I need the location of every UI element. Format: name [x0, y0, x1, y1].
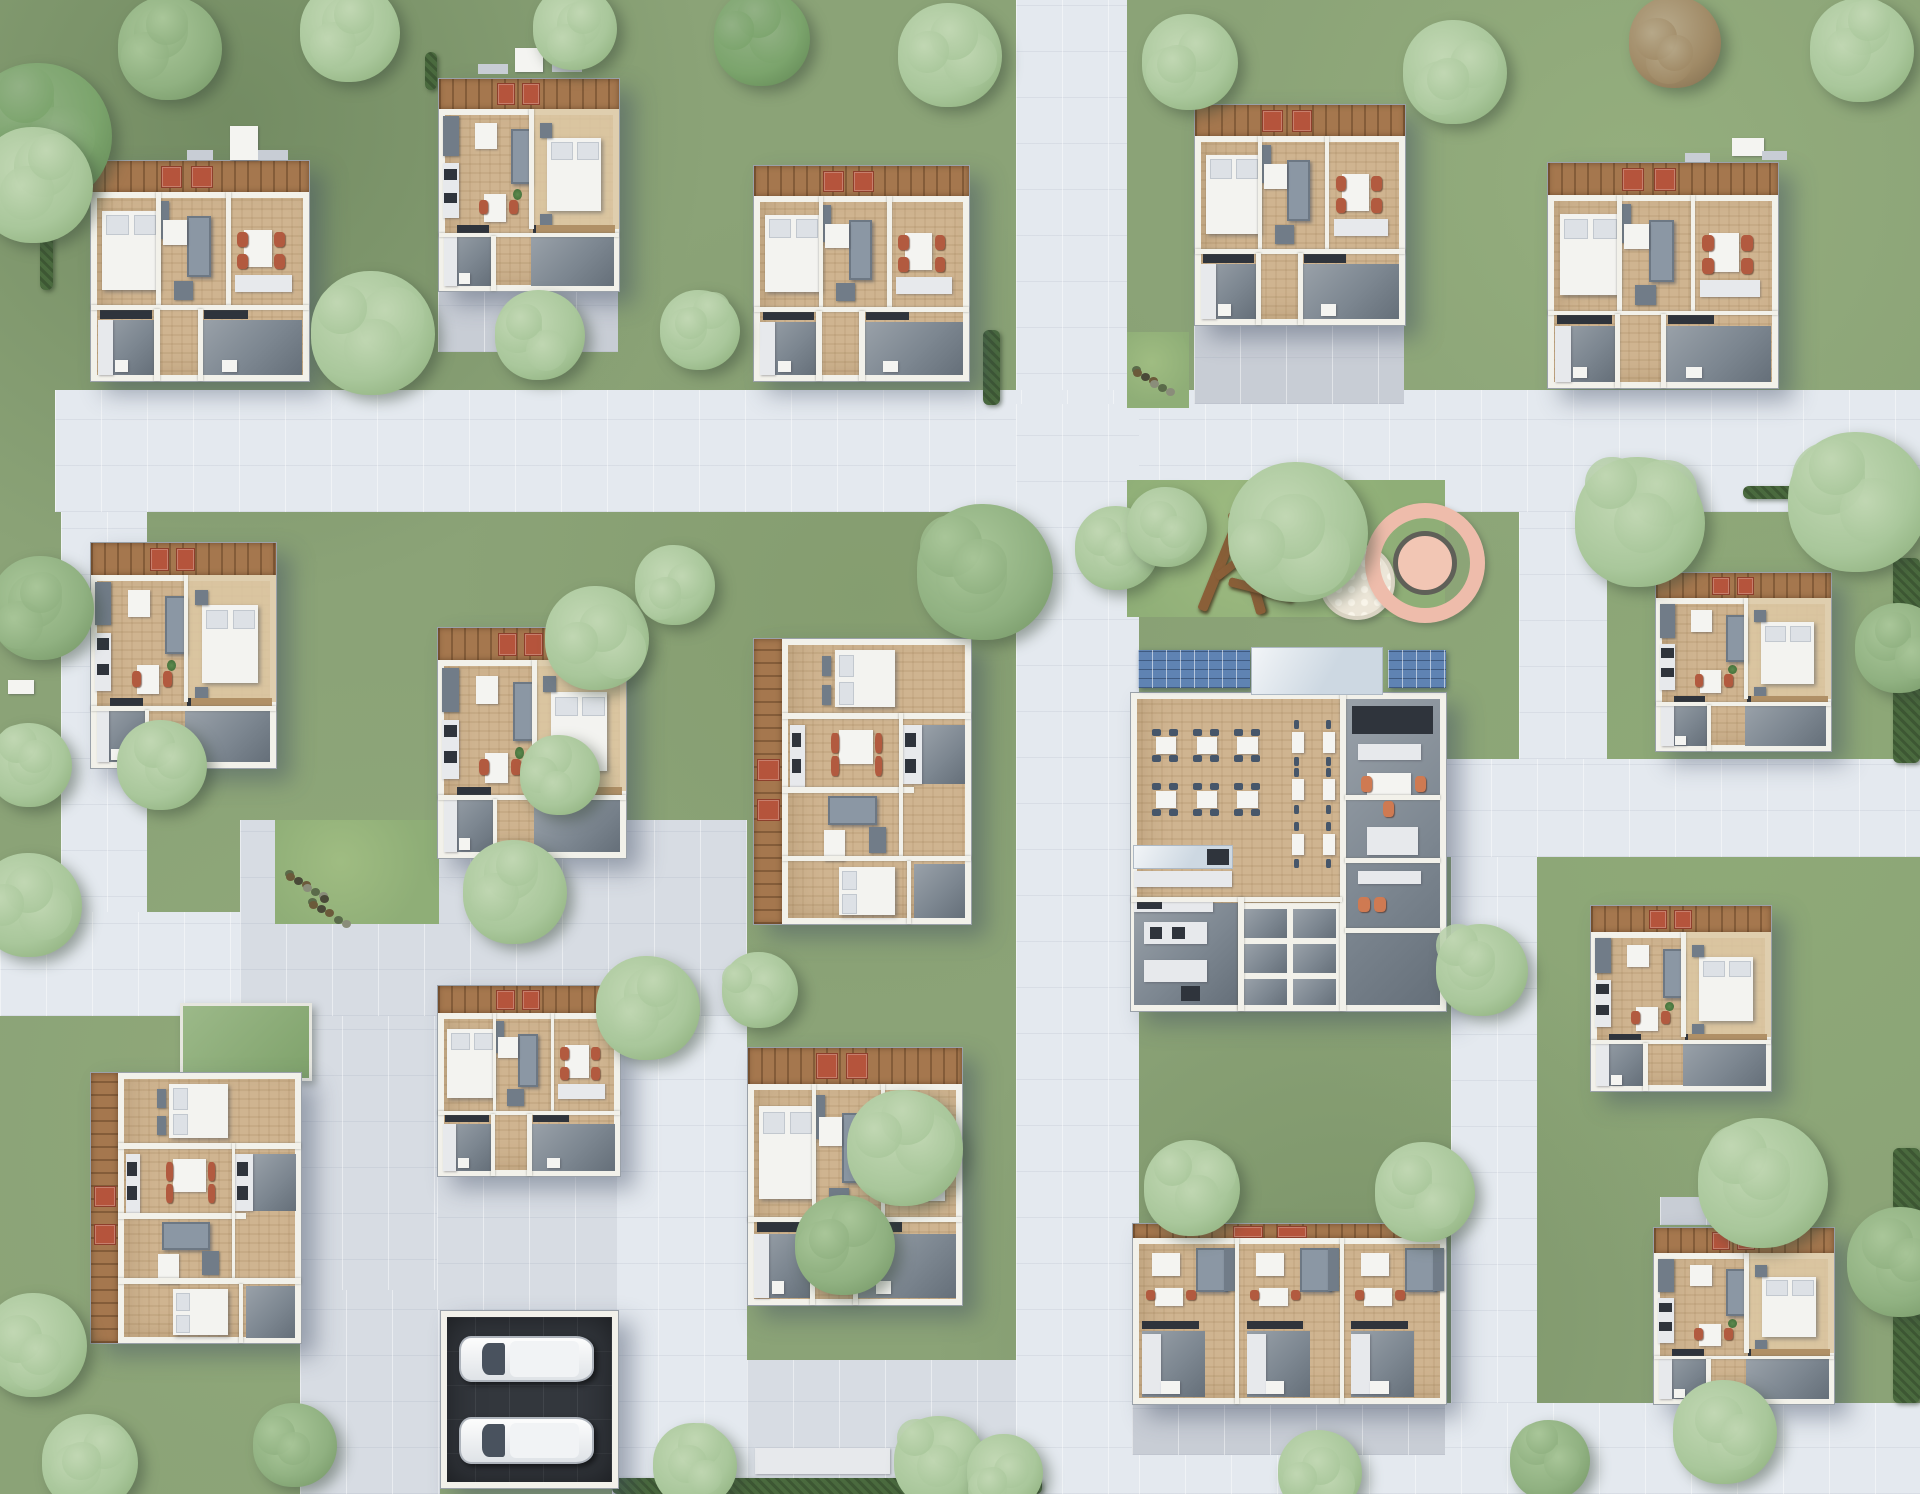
chair-red	[237, 232, 248, 247]
table-white	[1627, 945, 1649, 967]
house-14	[1653, 1227, 1835, 1405]
chair	[1193, 729, 1202, 736]
tree-foliage	[688, 1460, 722, 1494]
chair	[1294, 720, 1299, 729]
flower-patch	[1150, 380, 1159, 388]
dining-table	[1292, 834, 1304, 855]
bed-pillow	[1790, 626, 1811, 641]
counter	[98, 320, 113, 375]
car	[459, 1336, 594, 1382]
tree	[795, 1195, 895, 1295]
flower-patch	[342, 920, 351, 928]
dining-table-group	[1191, 785, 1223, 814]
chair	[1169, 755, 1178, 762]
interior-wall	[527, 1114, 532, 1176]
roof-deck	[91, 543, 276, 575]
room-gray	[914, 864, 965, 918]
interior-wall	[782, 787, 914, 793]
cabinet	[202, 1251, 218, 1275]
interior-wall	[493, 1013, 497, 1113]
interior-wall	[816, 311, 821, 381]
kitchen-counter-dark	[237, 1162, 248, 1176]
tree	[1629, 0, 1721, 88]
chair-red	[1371, 176, 1382, 191]
interior-wall	[1656, 702, 1831, 706]
bed-pillow	[842, 871, 856, 890]
interior-wall	[819, 196, 823, 309]
interior-wall	[551, 1013, 555, 1113]
tree-foliage	[952, 539, 1006, 593]
deck-lounger	[757, 759, 779, 781]
car-roof	[510, 1423, 578, 1459]
interior-wall	[1345, 928, 1440, 933]
cabinet	[1275, 225, 1294, 244]
interior-wall	[1617, 195, 1622, 313]
chair-red	[237, 254, 248, 269]
counter	[444, 799, 457, 852]
dining-table-group	[1150, 785, 1182, 814]
counter	[760, 322, 775, 376]
room-gray	[1244, 944, 1287, 973]
deck-lounger	[524, 633, 543, 656]
counter	[896, 277, 952, 294]
flower-patch	[1133, 369, 1142, 377]
car-windshield	[482, 1343, 506, 1375]
chair	[1169, 729, 1178, 736]
hedge	[425, 52, 437, 90]
chair	[1294, 805, 1299, 814]
table-white	[839, 730, 873, 764]
tree	[495, 290, 585, 380]
hedge	[983, 330, 1000, 405]
tree	[311, 271, 435, 395]
flower-patch	[311, 888, 320, 896]
chair	[1251, 755, 1260, 762]
interior-wall	[154, 309, 159, 381]
flower-patch	[286, 873, 295, 881]
deck-lounger	[94, 1186, 116, 1207]
tree-foliage	[1875, 612, 1911, 648]
interior-wall	[529, 109, 534, 229]
deck-lounger	[176, 548, 195, 571]
house-interior	[441, 1311, 618, 1488]
roof-deck	[1656, 573, 1831, 598]
garage	[440, 1310, 619, 1489]
dining-table-group	[1320, 773, 1339, 808]
tree	[0, 1293, 87, 1397]
tree-foliage	[897, 1419, 934, 1456]
bed-pillow	[1210, 159, 1232, 178]
cabinet	[1224, 1248, 1235, 1291]
table-white	[476, 676, 499, 704]
paving-slab	[258, 150, 288, 160]
cabinet	[1635, 285, 1656, 304]
tree	[1127, 487, 1207, 567]
bed-pillow	[1766, 1280, 1787, 1295]
room-gray	[531, 236, 614, 285]
counter	[444, 236, 457, 285]
chair-red	[1336, 176, 1347, 191]
cabinet	[195, 590, 208, 605]
kitchen-counter-dark	[1661, 648, 1673, 657]
interior-wall	[118, 1213, 246, 1218]
roof-deck	[1591, 906, 1771, 932]
footpath	[1194, 325, 1404, 404]
tree	[253, 1403, 337, 1487]
house-10	[1590, 905, 1772, 1092]
deck-lounger	[1277, 1226, 1307, 1237]
kitchen-counter-dark	[445, 1114, 489, 1122]
chair	[1152, 783, 1161, 790]
deck-lounger	[161, 166, 183, 188]
dining-table	[1197, 791, 1217, 808]
dining-table	[1237, 737, 1257, 754]
chair-red	[509, 200, 518, 215]
chair-red	[898, 257, 909, 272]
kitchen-counter-dark	[204, 309, 248, 318]
house-03	[753, 165, 970, 382]
table-white	[883, 361, 898, 372]
bed-pillow	[1703, 961, 1724, 977]
house-interior	[1591, 932, 1771, 1091]
flower-patch	[320, 895, 329, 903]
deck-lounger	[1737, 577, 1755, 595]
chair	[1326, 757, 1331, 766]
cabinet	[1660, 604, 1676, 638]
chair-red	[479, 200, 488, 215]
sofa	[1287, 160, 1310, 221]
dining-table	[1237, 791, 1257, 808]
chair-red	[166, 1162, 173, 1181]
table-white	[778, 361, 791, 372]
chair	[1210, 809, 1219, 816]
kitchen-counter-dark	[1659, 1322, 1672, 1331]
kitchen-counter-dark	[127, 1186, 136, 1200]
tree	[847, 1090, 963, 1206]
flower-patch	[1166, 388, 1175, 396]
flower-patch	[303, 884, 312, 892]
bed	[1560, 214, 1620, 295]
kitchen-counter-dark	[444, 751, 457, 763]
chair-red	[560, 1047, 569, 1060]
dining-table-group	[1320, 725, 1339, 760]
carousel-hub	[1393, 531, 1457, 595]
dining-table	[1197, 737, 1217, 754]
tree	[1847, 1207, 1920, 1317]
tree	[660, 290, 740, 370]
table-white	[498, 1037, 518, 1058]
community-house	[1130, 692, 1447, 1012]
dining-table	[1323, 834, 1335, 855]
chair-orange	[1415, 776, 1426, 792]
chair-orange	[1358, 897, 1371, 913]
deck-lounger	[1622, 168, 1645, 191]
kitchen-counter-dark	[1351, 1321, 1407, 1329]
counter	[1596, 1043, 1609, 1086]
interior-wall	[1325, 136, 1329, 251]
bed-pillow	[769, 219, 791, 238]
cabinet	[507, 1089, 523, 1105]
cabinet	[836, 283, 855, 301]
tree	[117, 720, 207, 810]
tree	[917, 504, 1053, 640]
chair-red	[1291, 1290, 1300, 1300]
cabinet	[1433, 1248, 1444, 1291]
kitchen-counter-dark	[237, 1186, 248, 1200]
table-white	[1674, 1389, 1685, 1398]
kitchen-counter-dark	[1659, 1303, 1672, 1312]
deck-lounger	[1292, 110, 1313, 132]
sofa	[513, 682, 534, 741]
chair-red	[1395, 1290, 1404, 1300]
interior-wall	[859, 311, 864, 381]
kitchen-counter-dark	[444, 193, 457, 204]
bed-pillow	[839, 655, 854, 678]
chair-red	[166, 1184, 173, 1203]
flower-patch	[317, 905, 326, 913]
deck-lounger	[1649, 910, 1667, 929]
counter	[558, 1084, 605, 1099]
chair-red	[560, 1067, 569, 1080]
interior-wall	[239, 1284, 243, 1343]
interior-wall	[1744, 1253, 1749, 1353]
bed-pillow	[763, 1112, 785, 1134]
kitchen-counter-dark	[1668, 314, 1714, 324]
room-gray	[1665, 326, 1771, 382]
interior-wall	[1691, 195, 1696, 313]
chair-red	[1694, 1328, 1703, 1340]
table-white	[1266, 1381, 1285, 1394]
counter	[1555, 326, 1571, 382]
deck-lounger	[1654, 168, 1677, 191]
counter	[1351, 1334, 1370, 1394]
shed-roof	[1732, 138, 1764, 156]
cabinet	[1755, 1265, 1768, 1277]
bed-pillow	[451, 1033, 470, 1050]
interior-wall	[91, 706, 276, 711]
potted-plant	[1728, 1319, 1737, 1328]
interior-wall	[1298, 253, 1303, 325]
tree	[898, 3, 1002, 107]
chair-red	[1741, 258, 1753, 273]
chair-red	[208, 1162, 215, 1181]
roof-deck	[754, 166, 969, 196]
potted-plant	[1665, 1002, 1674, 1012]
tree	[300, 0, 400, 82]
deck-lounger	[150, 548, 169, 571]
house-04	[1194, 104, 1406, 326]
counter	[1659, 1359, 1672, 1400]
interior-wall	[439, 233, 619, 238]
deck-lounger	[498, 633, 517, 656]
flower-patch	[1158, 384, 1167, 392]
counter	[1144, 960, 1207, 982]
paving-slab	[187, 150, 213, 160]
tree-foliage	[496, 844, 538, 886]
dining-table-group	[1232, 785, 1264, 814]
interior-wall	[782, 856, 971, 862]
chair-red	[1336, 198, 1347, 213]
deck-lounger	[522, 990, 540, 1010]
kitchen-counter-dark	[763, 311, 815, 320]
table-white	[876, 1281, 891, 1294]
cabinet	[1595, 938, 1611, 973]
roof-deck	[91, 161, 309, 192]
cabinet	[1692, 945, 1705, 958]
chair	[1193, 809, 1202, 816]
chair	[1251, 809, 1260, 816]
tree-foliage	[62, 1442, 100, 1480]
interior-wall	[1256, 253, 1261, 325]
bed-pillow	[134, 215, 156, 234]
bed-pillow	[582, 697, 604, 716]
cabinet	[1754, 610, 1766, 622]
room-gray	[1244, 909, 1287, 938]
dining-table-group	[1150, 731, 1182, 760]
tree	[1810, 0, 1914, 102]
table-white	[1370, 1381, 1389, 1394]
counter	[1134, 871, 1232, 887]
interior-wall	[156, 192, 160, 307]
bed	[169, 1084, 227, 1138]
car-windshield	[482, 1424, 506, 1456]
interior-wall	[184, 575, 189, 703]
chair	[1210, 783, 1219, 790]
interior-wall	[1661, 314, 1667, 388]
table-white	[459, 838, 470, 850]
row-houses	[1132, 1223, 1447, 1405]
kitchen-counter-dark	[792, 759, 801, 773]
chair	[1234, 755, 1243, 762]
house-05	[1547, 162, 1779, 389]
kitchen-counter-dark	[1661, 668, 1673, 677]
interior-wall	[1235, 1238, 1239, 1404]
bed-pillow	[796, 219, 818, 238]
footpath	[1016, 0, 1127, 420]
house-02	[438, 78, 620, 292]
tree	[722, 952, 798, 1028]
dining-table	[1292, 732, 1304, 753]
house-11	[90, 1072, 302, 1344]
deck-lounger	[757, 799, 779, 821]
kitchen-counter-dark	[1150, 927, 1163, 940]
green-roof	[180, 1003, 312, 1081]
chair-red	[1371, 198, 1382, 213]
chair	[1234, 809, 1243, 816]
tree	[596, 956, 700, 1060]
kitchen-counter-dark	[905, 759, 916, 773]
table-white	[1364, 1288, 1392, 1306]
bed	[173, 1289, 228, 1335]
roof-deck	[1548, 163, 1778, 195]
interior-wall	[1258, 136, 1262, 251]
house-09	[1655, 572, 1832, 752]
chair-red	[1724, 1328, 1733, 1340]
table-white	[458, 1158, 469, 1168]
tree-foliage	[540, 771, 572, 803]
flower-patch	[1141, 373, 1150, 381]
interior-wall	[1643, 1043, 1648, 1091]
cabinet	[95, 582, 112, 625]
chair	[1234, 729, 1243, 736]
dining-table-group	[1232, 731, 1264, 760]
kitchen-counter-dark	[1352, 706, 1434, 735]
cabinet	[442, 668, 459, 712]
dining-table	[1292, 779, 1304, 800]
bed-pillow	[173, 1088, 188, 1109]
chair-red	[1695, 674, 1704, 686]
chair-red	[591, 1067, 600, 1080]
interior-wall	[1340, 1238, 1344, 1404]
interior-wall	[1345, 858, 1440, 863]
bed	[547, 138, 601, 211]
tree-foliage	[156, 743, 192, 779]
chair-orange	[1361, 776, 1372, 792]
dining-table-group	[1289, 827, 1308, 862]
interior-wall	[907, 861, 911, 924]
deck-lounger	[853, 171, 874, 193]
solar-panel	[1138, 650, 1250, 688]
chair-red	[1741, 235, 1753, 250]
tree-foliage	[1526, 1422, 1558, 1454]
dining-table-group	[1289, 725, 1308, 760]
bed-pillow	[474, 1033, 493, 1050]
room-gray	[1293, 909, 1336, 938]
deck-lounger	[1674, 910, 1692, 929]
table-white	[1675, 736, 1686, 745]
chair	[1234, 783, 1243, 790]
kitchen-counter-dark	[1304, 253, 1346, 262]
tree-foliage	[907, 31, 949, 73]
chair-red	[274, 232, 285, 247]
skylight	[1252, 648, 1382, 694]
room-gray	[864, 322, 963, 376]
interior-wall	[118, 1278, 301, 1283]
house-08	[753, 638, 972, 925]
chair-red	[479, 759, 488, 775]
chair	[1294, 822, 1299, 831]
cabinet	[443, 116, 459, 156]
deck-lounger	[846, 1053, 867, 1079]
deck-lounger	[1712, 577, 1730, 595]
kitchen-counter-dark	[1181, 986, 1200, 1002]
tree	[1673, 1380, 1777, 1484]
room-gray	[1745, 705, 1826, 746]
bed-pillow	[577, 142, 598, 160]
table-white	[475, 123, 497, 149]
table-white	[128, 590, 150, 617]
room-gray	[1293, 979, 1336, 1004]
chair-red	[208, 1184, 215, 1203]
sofa	[162, 1222, 210, 1250]
tree	[1698, 1118, 1828, 1248]
bed	[447, 1029, 494, 1098]
bed-pillow	[1765, 626, 1786, 641]
kitchen-counter-dark	[866, 311, 909, 320]
kitchen-counter-dark	[533, 1114, 569, 1122]
dining-table-group	[1320, 827, 1339, 862]
bed-pillow	[1792, 1280, 1813, 1295]
tree	[1575, 457, 1705, 587]
room-gray	[531, 1124, 615, 1171]
paving-slab	[1762, 151, 1787, 160]
deck-lounger	[816, 1053, 837, 1079]
chair-red	[875, 756, 883, 776]
bed	[765, 215, 821, 293]
tree	[1228, 462, 1368, 602]
counter	[97, 710, 110, 762]
table-white	[1152, 1253, 1180, 1276]
